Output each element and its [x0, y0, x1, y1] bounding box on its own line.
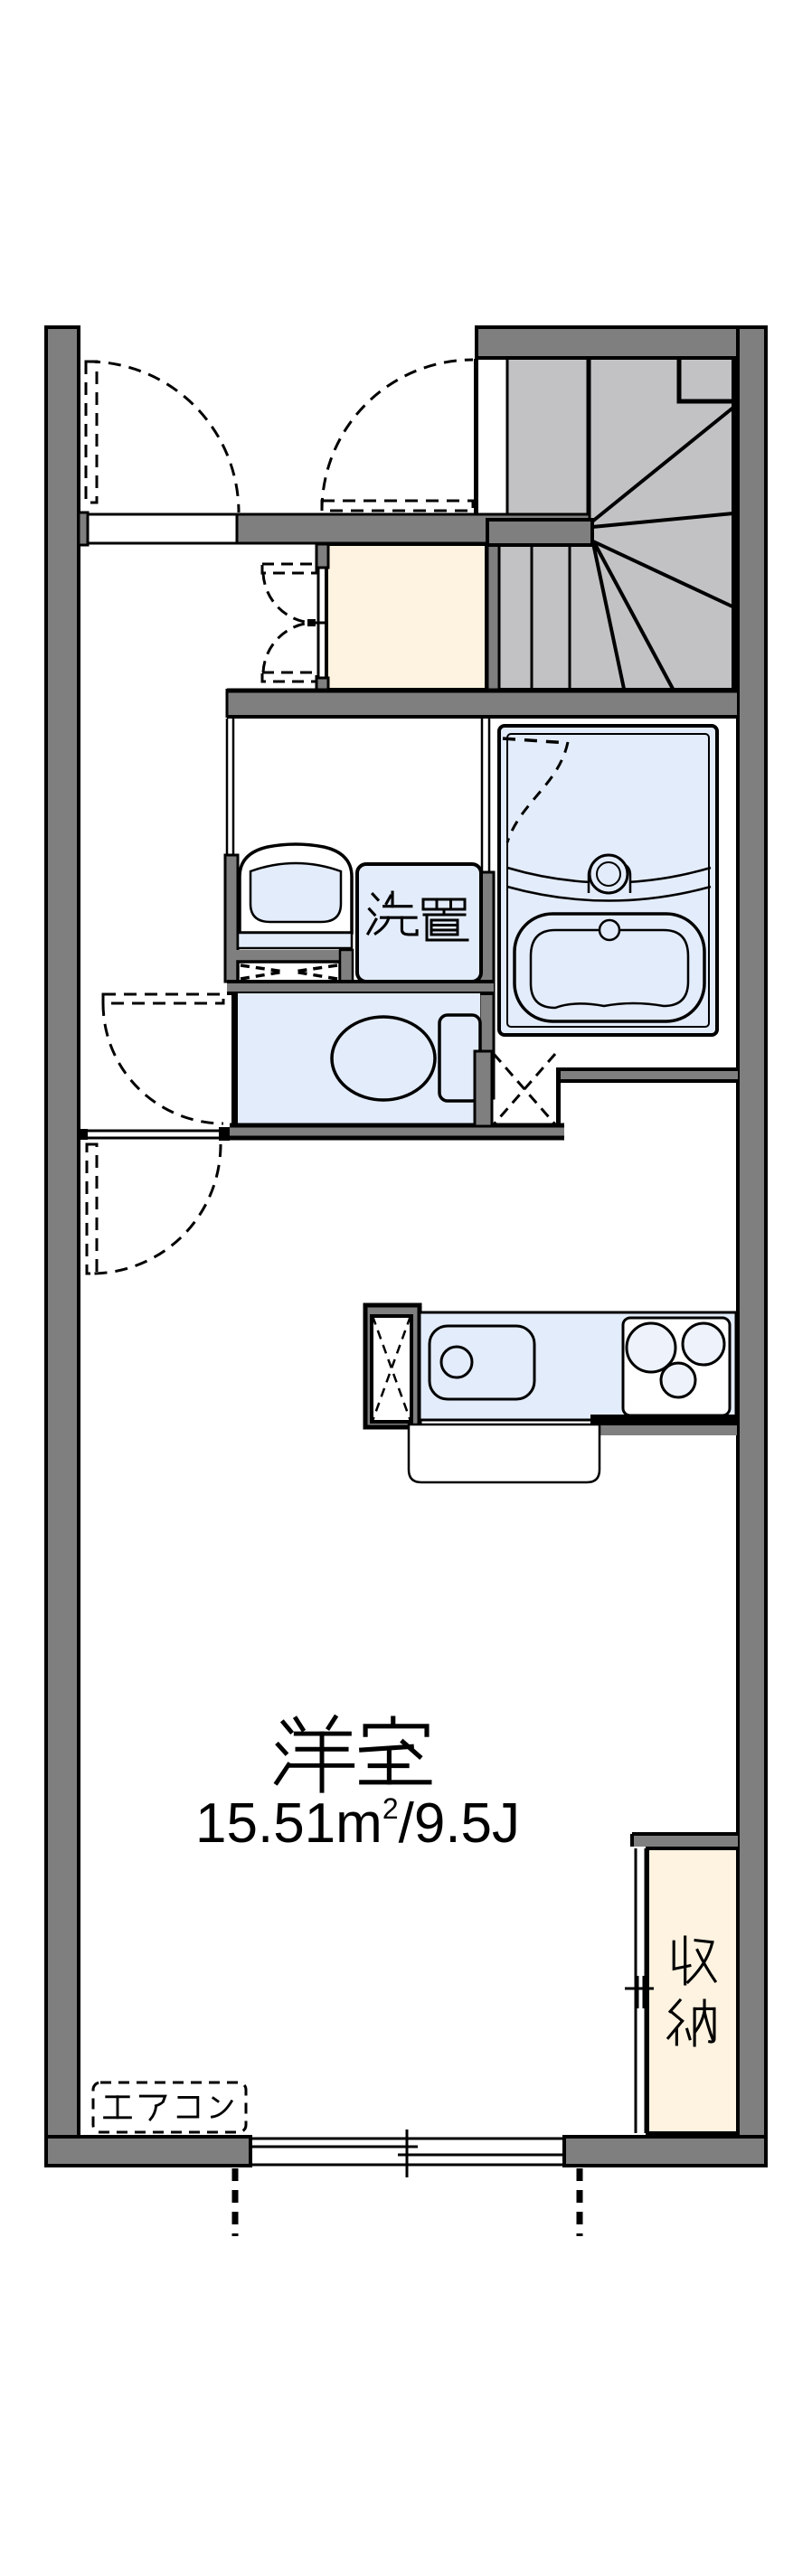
svg-text:15.51m2/9.5J: 15.51m2/9.5J — [195, 1792, 520, 1855]
